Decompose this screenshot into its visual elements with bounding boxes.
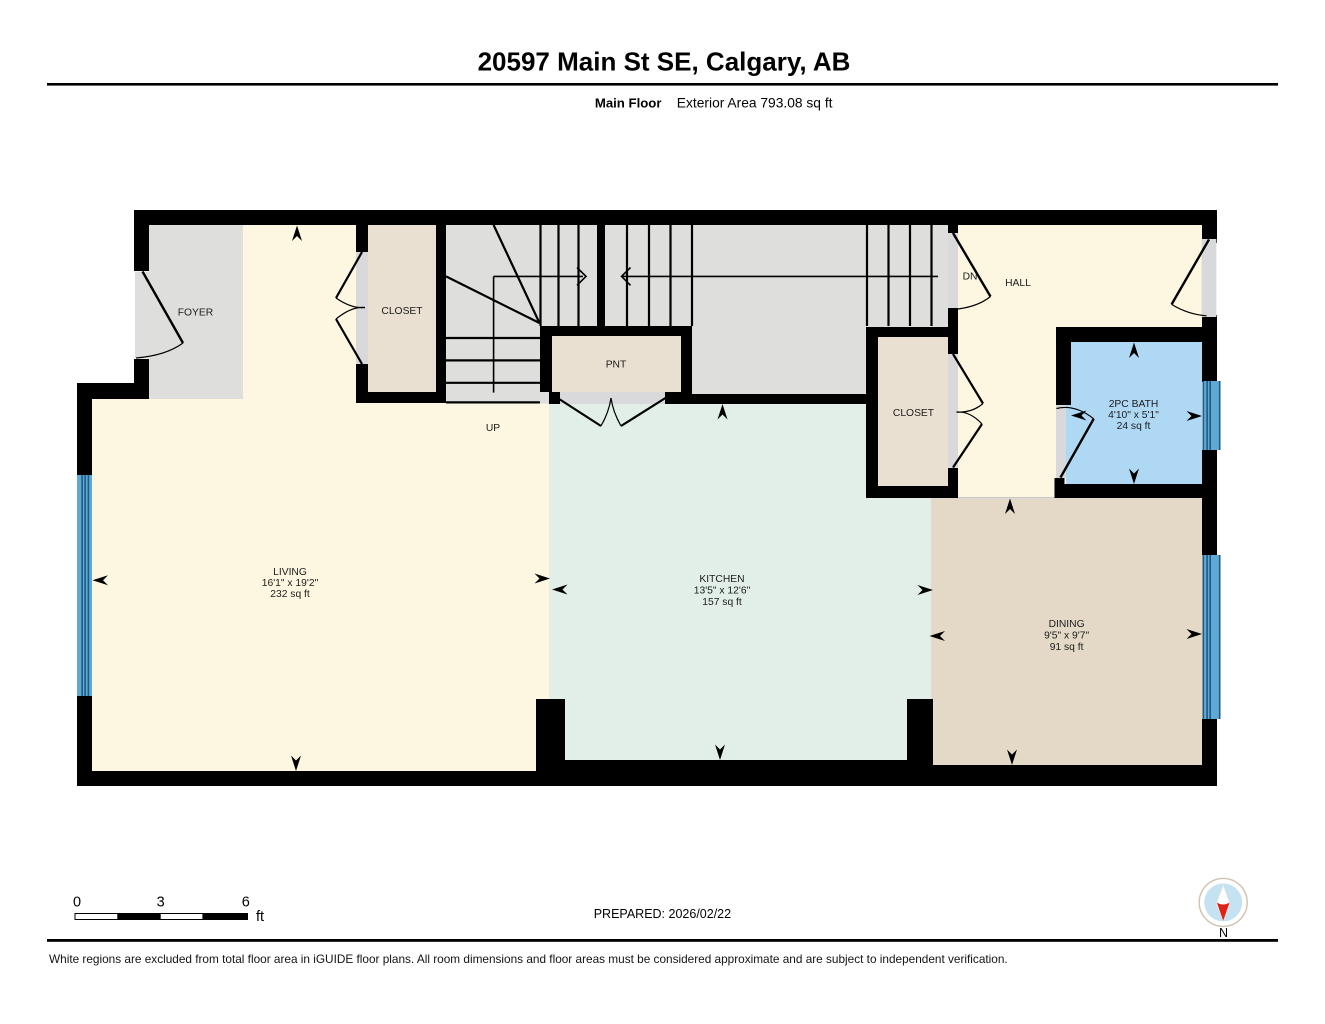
svg-text:ft: ft [256,909,264,925]
svg-text:KITCHEN: KITCHEN [699,574,744,585]
svg-text:CLOSET: CLOSET [893,408,935,419]
svg-text:0: 0 [73,895,81,911]
svg-text:24 sq ft: 24 sq ft [1117,421,1151,432]
svg-text:PNT: PNT [606,360,627,371]
svg-text:13'5" x 12'6": 13'5" x 12'6" [694,586,751,597]
svg-text:HALL: HALL [1005,278,1031,289]
svg-text:Exterior Area 793.08 sq ft: Exterior Area 793.08 sq ft [677,95,833,110]
svg-text:3: 3 [157,895,165,911]
svg-text:PREPARED: 2026/02/22: PREPARED: 2026/02/22 [594,907,731,921]
svg-text:N: N [1219,926,1228,940]
svg-text:FOYER: FOYER [178,308,213,319]
svg-text:9'5" x 9'7": 9'5" x 9'7" [1044,631,1089,642]
svg-text:UP: UP [486,423,500,434]
svg-text:157 sq ft: 157 sq ft [702,597,742,608]
svg-text:20597 Main St SE, Calgary, AB: 20597 Main St SE, Calgary, AB [478,47,851,77]
svg-text:2PC BATH: 2PC BATH [1109,399,1159,410]
svg-text:16'1" x 19'2": 16'1" x 19'2" [262,578,319,589]
svg-text:DINING: DINING [1049,619,1085,630]
svg-text:White regions are excluded fro: White regions are excluded from total fl… [49,952,1008,966]
svg-text:Main Floor: Main Floor [595,95,662,110]
svg-text:CLOSET: CLOSET [381,306,423,317]
svg-text:DN: DN [963,272,978,283]
svg-text:91 sq ft: 91 sq ft [1050,642,1084,653]
svg-text:LIVING: LIVING [273,567,307,578]
svg-text:232 sq ft: 232 sq ft [270,589,310,600]
svg-text:4'10" x 5'1": 4'10" x 5'1" [1108,410,1159,421]
svg-text:6: 6 [242,895,250,911]
